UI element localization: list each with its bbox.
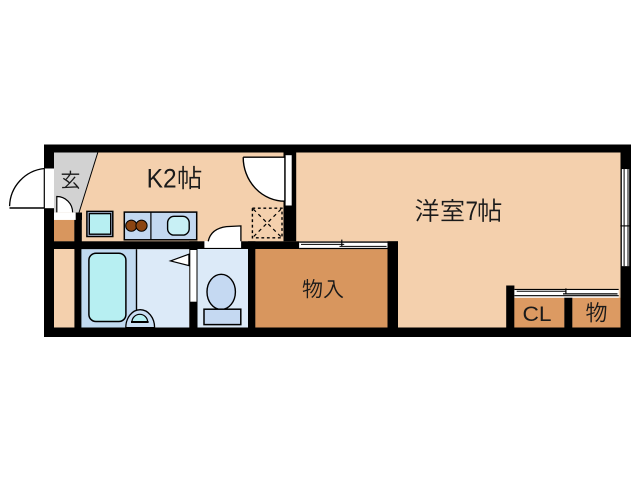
svg-text:7: 7 xyxy=(466,196,479,226)
svg-text:K2: K2 xyxy=(147,163,177,193)
svg-text:CL: CL xyxy=(523,303,552,326)
